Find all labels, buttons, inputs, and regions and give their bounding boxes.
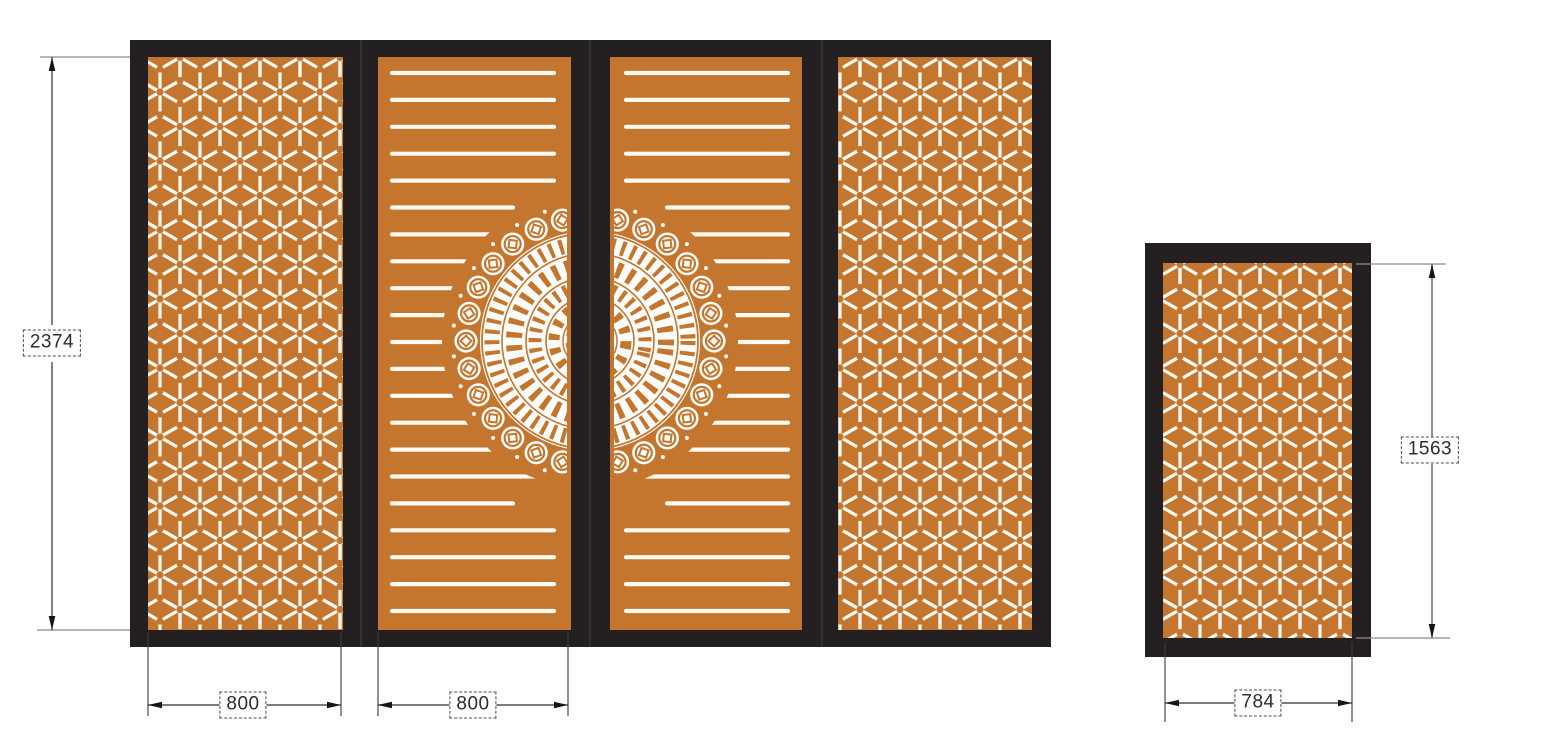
dim-label-main-height: 2374: [23, 330, 81, 357]
gate-drawing-svg: [0, 0, 1541, 751]
dim-label-side-width: 784: [1234, 690, 1281, 717]
dim-label-panel1-width: 800: [219, 692, 266, 719]
drawing-canvas: 2374 800 800 1563 784: [0, 0, 1541, 751]
dim-label-panel2-width: 800: [449, 692, 496, 719]
main-gate: [130, 40, 1051, 647]
side-panel: [1145, 243, 1371, 657]
panel-1-hex-pattern: [148, 57, 343, 630]
panel-4-hex-pattern: [838, 57, 1032, 630]
side-panel-hex-pattern: [1163, 263, 1352, 638]
dim-label-side-height: 1563: [1401, 437, 1459, 464]
